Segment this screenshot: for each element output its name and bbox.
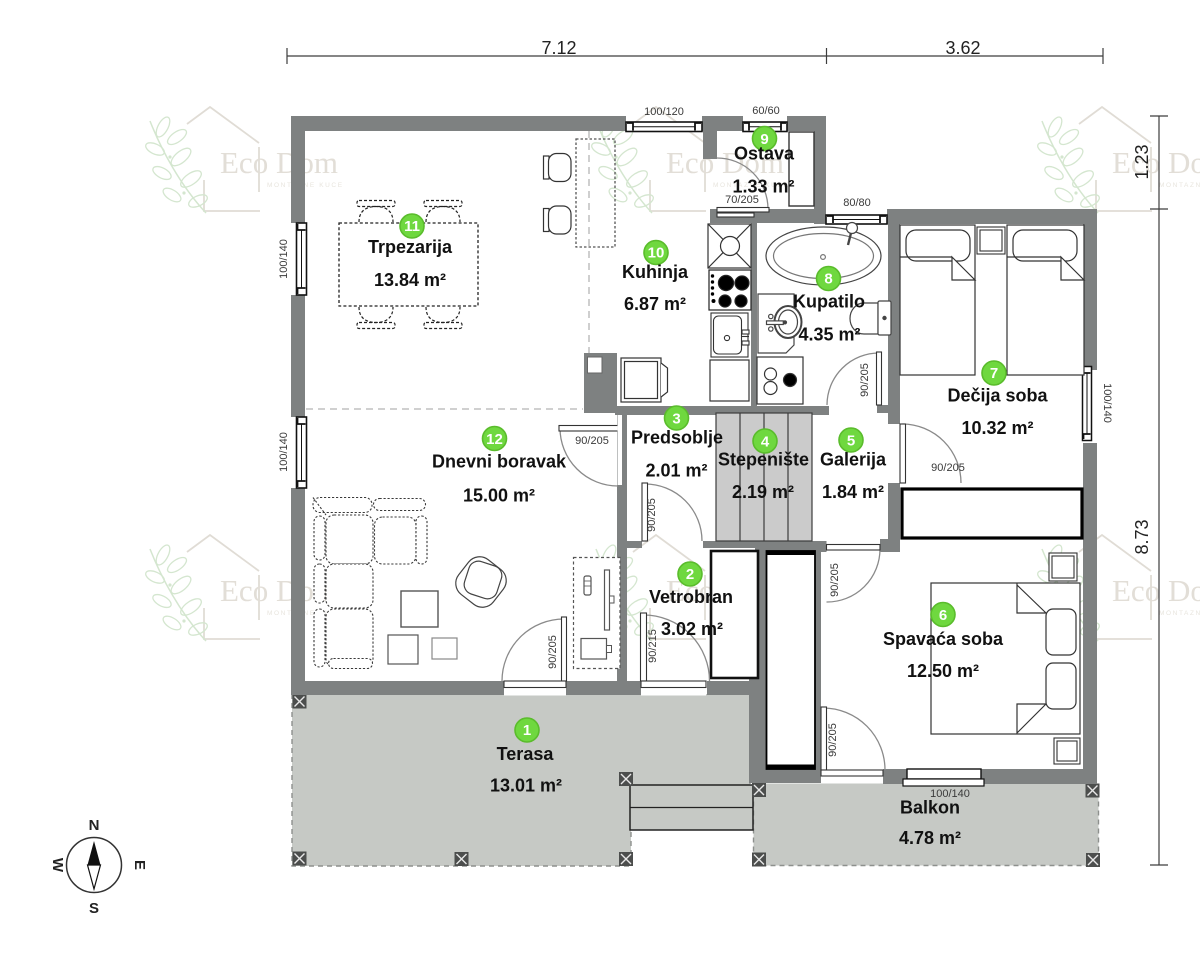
- svg-text:Terasa: Terasa: [497, 744, 555, 764]
- svg-text:7.12: 7.12: [541, 38, 576, 58]
- svg-text:6.87 m²: 6.87 m²: [624, 294, 686, 314]
- svg-text:10: 10: [648, 245, 665, 262]
- svg-text:5: 5: [847, 433, 855, 450]
- svg-text:60/60: 60/60: [752, 105, 780, 117]
- svg-text:13.84 m²: 13.84 m²: [374, 270, 446, 290]
- svg-text:3: 3: [672, 411, 680, 428]
- svg-text:Ostava: Ostava: [734, 144, 795, 164]
- svg-text:1.33 m²: 1.33 m²: [732, 177, 794, 197]
- svg-text:11: 11: [404, 218, 420, 235]
- svg-text:N: N: [89, 817, 100, 834]
- svg-text:100/140: 100/140: [278, 432, 290, 472]
- svg-text:Spavaća soba: Spavaća soba: [883, 629, 1004, 649]
- svg-text:90/205: 90/205: [859, 363, 871, 397]
- svg-text:Predsoblje: Predsoblje: [631, 428, 723, 448]
- svg-text:Balkon: Balkon: [900, 798, 960, 818]
- svg-text:2.19 m²: 2.19 m²: [732, 482, 794, 502]
- svg-text:8: 8: [824, 271, 832, 288]
- svg-text:2.01 m²: 2.01 m²: [645, 461, 707, 481]
- svg-text:Vetrobran: Vetrobran: [649, 587, 733, 607]
- svg-text:Stepenište: Stepenište: [718, 450, 809, 470]
- svg-text:Dnevni boravak: Dnevni boravak: [432, 452, 567, 472]
- svg-text:1: 1: [523, 722, 531, 739]
- svg-text:90/205: 90/205: [827, 723, 839, 757]
- svg-text:3.02 m²: 3.02 m²: [661, 619, 723, 639]
- svg-text:100/140: 100/140: [278, 239, 290, 279]
- svg-text:Galerija: Galerija: [820, 450, 887, 470]
- svg-text:3.62: 3.62: [945, 38, 980, 58]
- svg-text:90/215: 90/215: [647, 629, 659, 663]
- svg-text:10.32 m²: 10.32 m²: [961, 418, 1033, 438]
- svg-text:15.00 m²: 15.00 m²: [463, 486, 535, 506]
- svg-text:80/80: 80/80: [843, 197, 871, 209]
- svg-text:100/120: 100/120: [644, 106, 684, 118]
- svg-text:4.78 m²: 4.78 m²: [899, 828, 961, 848]
- svg-text:4.35 m²: 4.35 m²: [798, 325, 860, 345]
- svg-text:4: 4: [761, 434, 770, 451]
- svg-text:90/205: 90/205: [829, 563, 841, 597]
- svg-text:13.01 m²: 13.01 m²: [490, 776, 562, 796]
- svg-text:7: 7: [990, 365, 998, 382]
- svg-text:Trpezarija: Trpezarija: [368, 237, 453, 257]
- svg-text:90/205: 90/205: [931, 462, 965, 474]
- svg-text:2: 2: [686, 566, 694, 583]
- svg-text:90/205: 90/205: [646, 498, 658, 532]
- svg-text:8.73: 8.73: [1132, 519, 1152, 554]
- svg-text:Kuhinja: Kuhinja: [622, 262, 689, 282]
- svg-text:90/205: 90/205: [575, 435, 609, 447]
- svg-text:Kupatilo: Kupatilo: [793, 292, 865, 312]
- svg-text:6: 6: [939, 607, 947, 624]
- svg-text:100/140: 100/140: [1101, 383, 1113, 423]
- svg-text:E: E: [131, 860, 148, 870]
- svg-text:1.84 m²: 1.84 m²: [822, 482, 884, 502]
- svg-text:1.23: 1.23: [1132, 144, 1152, 179]
- svg-text:W: W: [49, 858, 66, 873]
- svg-text:90/205: 90/205: [547, 635, 559, 669]
- svg-text:Dečija soba: Dečija soba: [947, 386, 1048, 406]
- svg-text:12.50 m²: 12.50 m²: [907, 661, 979, 681]
- svg-text:12: 12: [486, 431, 503, 448]
- svg-text:S: S: [89, 900, 99, 917]
